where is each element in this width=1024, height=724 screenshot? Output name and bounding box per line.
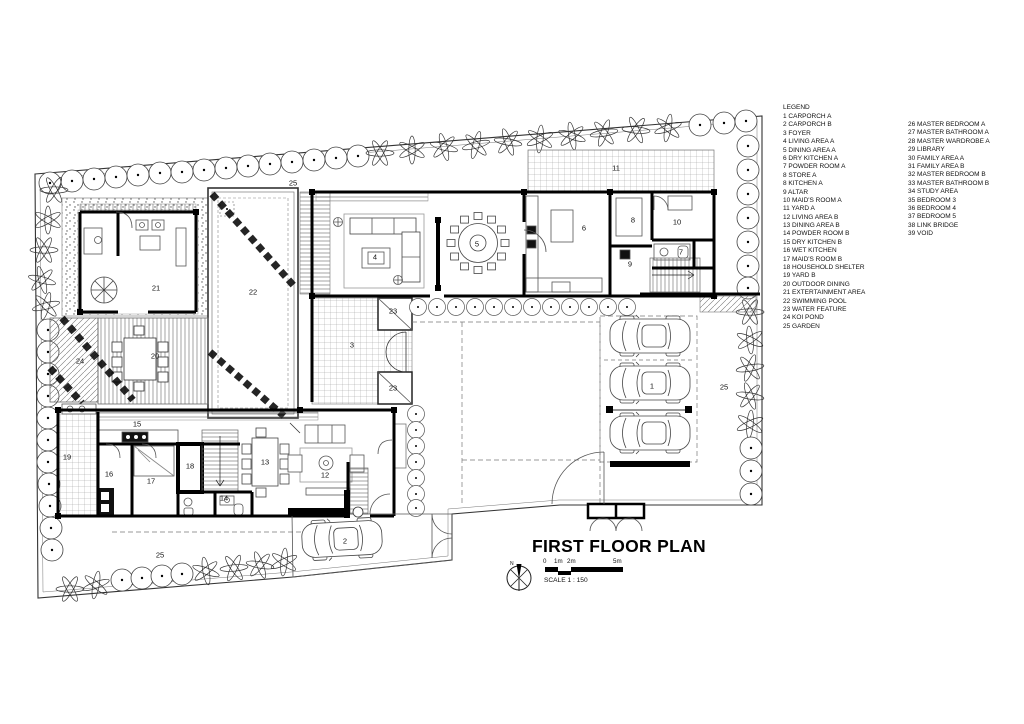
yard-b: [58, 412, 98, 516]
maid-room-b-bed: [134, 446, 174, 476]
legend-item: 26 MASTER BEDROOM A: [908, 121, 990, 129]
legend-item: 12 LIVING AREA B: [783, 214, 865, 222]
wet-kitchen-counter: [98, 488, 114, 516]
scale-tick: 5m: [613, 558, 622, 565]
legend-item: 31 FAMILY AREA B: [908, 163, 990, 171]
scale-label: SCALE 1 : 150: [544, 577, 588, 584]
legend-item: 39 VOID: [908, 230, 990, 238]
legend-item: 9 ALTAR: [783, 189, 865, 197]
legend-item: 34 STUDY AREA: [908, 188, 990, 196]
car-icon: [610, 412, 690, 454]
legend-column-1: 1 CARPORCH A2 CARPORCH B3 FOYER4 LIVING …: [783, 113, 865, 331]
legend-item: 18 HOUSEHOLD SHELTER: [783, 264, 865, 272]
legend-item: 23 WATER FEATURE: [783, 306, 865, 314]
scale-tick: 0: [543, 558, 546, 565]
floor-plan-drawing: N: [0, 0, 1024, 724]
scale-tick: 2m: [567, 558, 576, 565]
legend-item: 2 CARPORCH B: [783, 121, 865, 129]
north-arrow-icon: N: [507, 561, 531, 591]
legend-item: 16 WET KITCHEN: [783, 247, 865, 255]
legend-item: 30 FAMILY AREA A: [908, 155, 990, 163]
legend-item: 33 MASTER BATHROOM B: [908, 180, 990, 188]
dining-table-round: [447, 213, 509, 274]
legend-item: 7 POWDER ROOM A: [783, 163, 865, 171]
legend-item: 32 MASTER BEDROOM B: [908, 171, 990, 179]
legend-item: 5 DINING AREA A: [783, 147, 865, 155]
sliding-gate: [288, 508, 350, 516]
legend-item: 36 BEDROOM 4: [908, 205, 990, 213]
legend-item: 17 MAID'S ROOM B: [783, 256, 865, 264]
driveway-gate: [588, 504, 644, 531]
living-area-a-furniture: [334, 214, 425, 288]
legend-item: 8 KITCHEN A: [783, 180, 865, 188]
legend-item: 3 FOYER: [783, 130, 865, 138]
scale-tick: 1m: [554, 558, 563, 565]
hedge-row-courtyard: [410, 299, 636, 316]
household-shelter: [178, 444, 202, 492]
powder-room-a-fixtures: [654, 244, 690, 260]
legend-item: 1 CARPORCH A: [783, 113, 865, 121]
garden-trees-bottom: [56, 543, 303, 605]
garden-trees-right: [730, 135, 769, 505]
planter-box: [394, 424, 406, 468]
legend-item: 15 DRY KITCHEN B: [783, 239, 865, 247]
legend-item: 11 YARD A: [783, 205, 865, 213]
legend-item: 24 KOI POND: [783, 314, 865, 322]
entry-ramp: [700, 296, 756, 312]
foyer: [312, 298, 412, 404]
legend-item: 20 OUTDOOR DINING: [783, 281, 865, 289]
legend-column-2: 26 MASTER BEDROOM A27 MASTER BATHROOM A2…: [908, 121, 990, 238]
legend-item: 13 DINING AREA B: [783, 222, 865, 230]
altar: [620, 250, 630, 259]
legend-item: 4 LIVING AREA A: [783, 138, 865, 146]
yard-a: [528, 150, 714, 192]
outdoor-dining-deck: [98, 318, 208, 404]
legend-item: 10 MAID'S ROOM A: [783, 197, 865, 205]
swimming-pool: [208, 188, 298, 418]
legend-heading: LEGEND: [783, 104, 810, 111]
legend-item: 14 POWDER ROOM B: [783, 230, 865, 238]
carporch-door-swing: [432, 514, 452, 558]
legend-item: 19 YARD B: [783, 272, 865, 280]
house-a: [312, 150, 760, 312]
car-icon: [610, 362, 690, 404]
legend-item: 28 MASTER WARDROBE A: [908, 138, 990, 146]
staircase-b: [202, 430, 238, 492]
spiral-staircase: [91, 277, 117, 303]
legend-item: 25 GARDEN: [783, 323, 865, 331]
dining-table-b: [242, 428, 289, 497]
legend-item: 22 SWIMMING POOL: [783, 298, 865, 306]
entertainment-pavilion: [62, 198, 208, 316]
legend-item: 21 EXTERTAINMENT AREA: [783, 289, 865, 297]
legend-item: 38 LINK BRIDGE: [908, 222, 990, 230]
legend-item: 8 STORE A: [783, 172, 865, 180]
car-icon: [301, 516, 383, 562]
legend-item: 35 BEDROOM 3: [908, 197, 990, 205]
legend-item: 29 LIBRARY: [908, 146, 990, 154]
carporch-a: [552, 315, 697, 531]
legend-item: 27 MASTER BATHROOM A: [908, 129, 990, 137]
hedge-column-courtyard: [408, 406, 425, 517]
floor-plan-page: N 12345678910111213141516171819202122232…: [0, 0, 1024, 724]
legend-item: 37 BEDROOM 5: [908, 213, 990, 221]
dry-kitchen-b-counter: [98, 430, 178, 444]
plan-title: FIRST FLOOR PLAN: [532, 536, 706, 557]
car-icon: [610, 315, 690, 357]
dry-kitchen-a-fixtures: [526, 196, 602, 292]
legend-item: 6 DRY KITCHEN A: [783, 155, 865, 163]
pool-deck: [300, 192, 330, 294]
north-letter: N: [510, 561, 514, 567]
scale-bar: [545, 567, 623, 575]
house-b: [58, 404, 406, 516]
